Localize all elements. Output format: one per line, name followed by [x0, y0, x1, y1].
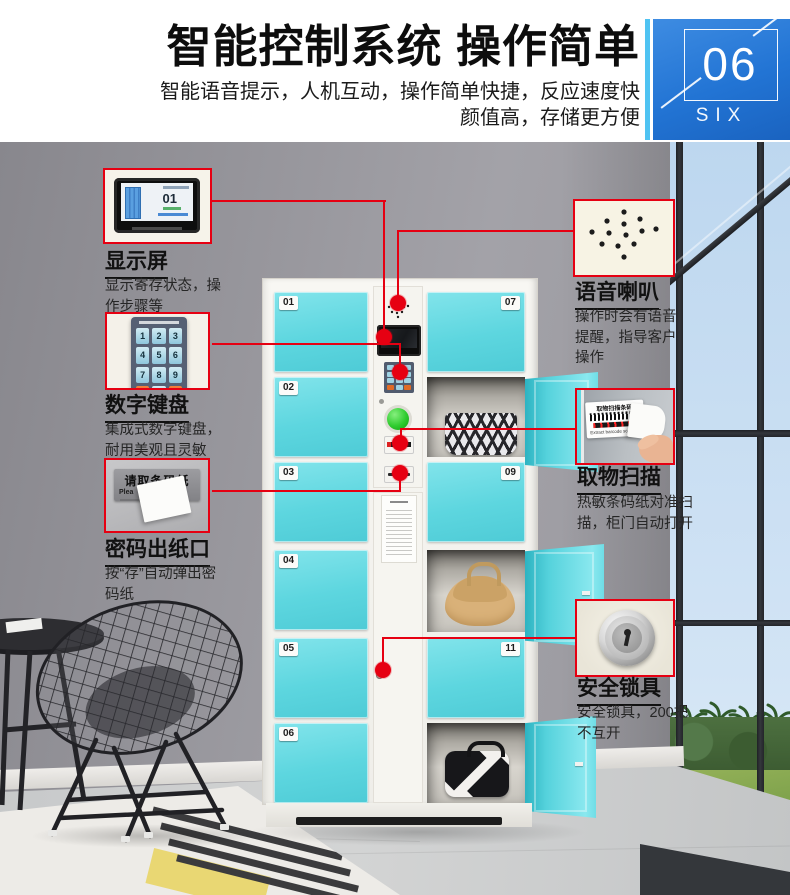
scanner-leds	[593, 421, 629, 428]
subtitle-line-2: 颜值高，存储更方便	[88, 105, 640, 131]
locker-door: 03	[274, 462, 368, 542]
connector-lock-h	[382, 637, 577, 639]
key-6: 6	[169, 347, 182, 363]
connector-dot-keypad	[392, 364, 408, 380]
callout-title-speaker: 语音喇叭	[575, 281, 659, 310]
window-bar	[757, 142, 764, 862]
outlet-sign-english: Plea	[119, 489, 133, 496]
connector-speaker-h	[397, 230, 575, 232]
open-compartment	[427, 723, 525, 803]
section-number-badge: 06 SIX	[653, 19, 790, 140]
key-5: 5	[152, 347, 165, 363]
keypad-keys: 1 2 3 4 5 6 7 8 9 0	[136, 328, 182, 390]
display-screen: 01	[121, 183, 193, 221]
screen-date-line	[163, 186, 189, 189]
door-number: 07	[501, 296, 520, 310]
connector-dot-display	[376, 329, 392, 345]
bag-handle	[467, 741, 505, 757]
page-subtitle: 智能语音提示，人机互动，操作简单快捷，反应速度快 颜值高，存储更方便	[88, 79, 640, 131]
key-4: 4	[136, 347, 149, 363]
callout-title-keypad: 数字键盘	[105, 394, 189, 423]
password-paper	[137, 475, 192, 522]
callout-desc-lock: 安全锁具，200把不互开	[577, 703, 697, 744]
locker-door: 01	[274, 292, 368, 372]
connector-display-h	[212, 200, 386, 202]
scan-callout-image: 取物扫描条码 Extract barcode scanning	[575, 388, 675, 465]
key-2: 2	[152, 328, 165, 344]
badge-word: SIX	[653, 105, 790, 127]
locker-door: 06	[274, 723, 368, 803]
connector-dot-scan	[392, 435, 408, 451]
key-8: 8	[152, 367, 165, 383]
key-9: 9	[169, 367, 182, 383]
door-number: 11	[501, 642, 520, 656]
locker-door: 04	[274, 550, 368, 630]
door-number: 04	[279, 554, 298, 568]
paper-outlet-callout-image: 请取条码纸 Plea	[104, 458, 210, 533]
locker-door: 02	[274, 377, 368, 457]
callout-title-paper-outlet: 密码出纸口	[105, 538, 210, 567]
connector-outlet-h	[212, 490, 401, 492]
key-7: 7	[136, 367, 149, 383]
connector-speaker-v	[397, 230, 399, 305]
connector-scan-h	[400, 428, 577, 430]
callout-title-lock: 安全锁具	[577, 677, 661, 706]
display-callout-image: 01	[103, 168, 212, 244]
key-take	[169, 386, 182, 390]
locker-door: 09	[427, 462, 525, 542]
lock-cylinder	[599, 610, 655, 666]
badge-accent-line	[645, 19, 650, 140]
key-store	[136, 386, 149, 390]
keypad-callout-image: 1 2 3 4 5 6 7 8 9 0	[105, 312, 210, 390]
open-compartment	[427, 377, 525, 457]
screen-text-line	[158, 213, 188, 216]
geometric-basket	[445, 413, 517, 455]
connector-dot-lock	[375, 662, 391, 678]
callout-desc-speaker: 操作时会有语音提醒，指导客户操作	[575, 307, 689, 369]
lock-ring	[605, 616, 649, 660]
screen-text-line	[163, 207, 181, 210]
connector-display-v	[383, 200, 385, 339]
screen-number: 01	[163, 191, 177, 206]
locker-door: 11	[427, 638, 525, 718]
door-number: 01	[279, 296, 298, 310]
badge-number: 06	[684, 29, 776, 99]
door-edge-white	[581, 390, 584, 463]
product-infographic: 01 02 03 04 05 06 07 09 11	[0, 0, 790, 895]
callout-desc-scan: 热敏条码纸对准扫描，柜门自动打开	[577, 493, 697, 534]
connector-keypad-h	[212, 343, 401, 345]
lock-callout-image	[575, 599, 675, 677]
base-recess	[296, 817, 502, 825]
connector-dot-speaker	[390, 295, 406, 311]
key-3: 3	[169, 328, 182, 344]
screw	[379, 399, 384, 404]
tan-handbag	[445, 576, 515, 626]
key-0: 0	[152, 386, 165, 390]
screen-footer-strip	[132, 227, 182, 230]
cabinet-base	[266, 803, 532, 827]
callout-desc-paper-outlet: 按“存”自动弹出密码纸	[105, 564, 227, 605]
speaker-callout-image	[573, 199, 675, 277]
header-text-block: 智能控制系统 操作简单 智能语音提示，人机互动，操作简单快捷，反应速度快 颜值高…	[88, 22, 640, 131]
locker-graphic-icon	[125, 187, 141, 219]
keypad-title-bar	[139, 321, 179, 324]
speaker-holes	[575, 201, 673, 275]
keyhole-slot	[624, 634, 630, 647]
display-bezel: 01	[114, 178, 200, 233]
key-1: 1	[136, 328, 149, 344]
open-compartment	[427, 550, 525, 632]
subtitle-line-1: 智能语音提示，人机互动，操作简单快捷，反应速度快	[88, 79, 640, 105]
instruction-sheet	[382, 496, 416, 562]
door-number: 05	[279, 642, 298, 656]
callout-title-scan: 取物扫描	[577, 466, 661, 495]
callout-desc-keypad: 集成式数字键盘，耐用美观且灵敏	[105, 420, 231, 461]
door-number: 06	[279, 727, 298, 741]
door-latch	[575, 762, 583, 766]
keypad-panel: 1 2 3 4 5 6 7 8 9 0	[131, 317, 187, 390]
callout-desc-display: 显示寄存状态，操作步骤等	[105, 276, 227, 317]
door-number: 09	[501, 466, 520, 480]
page-title: 智能控制系统 操作简单	[88, 22, 640, 72]
lock-core	[612, 623, 642, 653]
door-latch	[582, 591, 590, 595]
green-button	[387, 408, 409, 430]
window-bar	[670, 430, 790, 437]
callout-title-display: 显示屏	[105, 250, 168, 279]
door-number: 02	[279, 381, 298, 395]
window-bar	[670, 620, 790, 626]
connector-dot-outlet	[392, 465, 408, 481]
locker-door: 05	[274, 638, 368, 718]
door-number: 03	[279, 466, 298, 480]
locker-door: 07	[427, 292, 525, 372]
black-white-handbag	[445, 751, 509, 797]
wire-chair	[16, 580, 264, 848]
